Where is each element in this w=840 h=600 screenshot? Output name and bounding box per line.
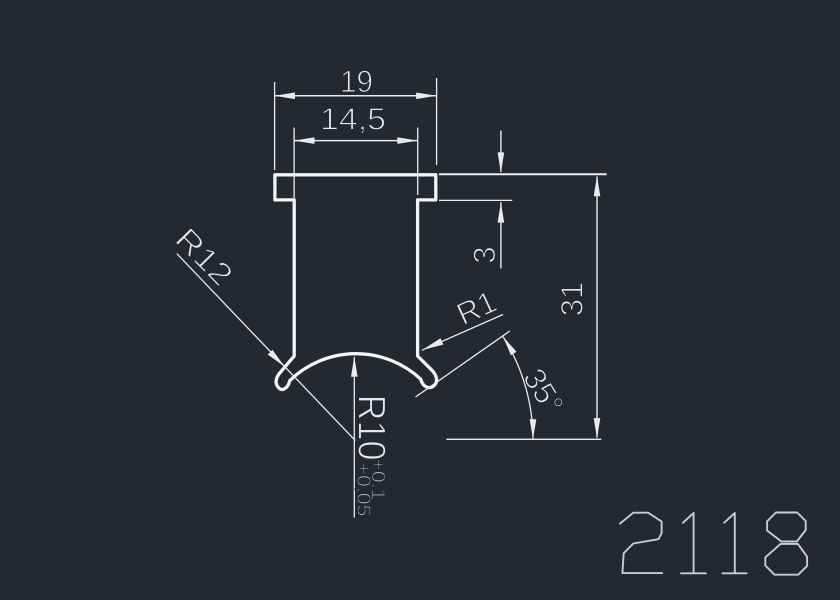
- svg-text:19: 19: [340, 64, 373, 99]
- svg-text:R10: R10: [350, 395, 393, 461]
- svg-text:+0,05: +0,05: [353, 463, 374, 517]
- svg-text:3: 3: [467, 246, 502, 263]
- svg-text:14,5: 14,5: [320, 102, 386, 137]
- svg-text:31: 31: [554, 282, 589, 316]
